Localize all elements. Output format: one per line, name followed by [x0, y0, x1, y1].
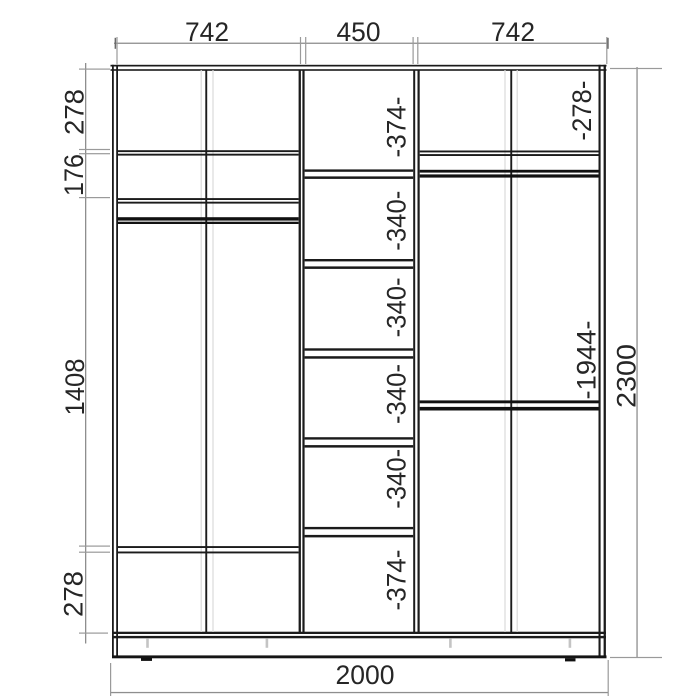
svg-text:-374-: -374-: [382, 97, 412, 158]
svg-text:2000: 2000: [336, 660, 395, 690]
svg-text:742: 742: [185, 17, 229, 47]
svg-text:278: 278: [60, 89, 90, 135]
svg-text:278: 278: [59, 571, 89, 617]
svg-text:-340-: -340-: [382, 191, 412, 251]
svg-text:742: 742: [491, 17, 535, 47]
svg-text:-340-: -340-: [382, 364, 412, 424]
svg-text:176: 176: [59, 154, 89, 196]
svg-text:-340-: -340-: [382, 277, 412, 337]
svg-text:450: 450: [337, 17, 381, 47]
svg-text:-278-: -278-: [567, 81, 597, 141]
svg-text:1408: 1408: [60, 359, 90, 416]
svg-text:-1944-: -1944-: [572, 321, 602, 400]
svg-text:2300: 2300: [612, 344, 642, 408]
svg-text:-374-: -374-: [382, 550, 412, 611]
svg-text:-340-: -340-: [382, 449, 412, 509]
